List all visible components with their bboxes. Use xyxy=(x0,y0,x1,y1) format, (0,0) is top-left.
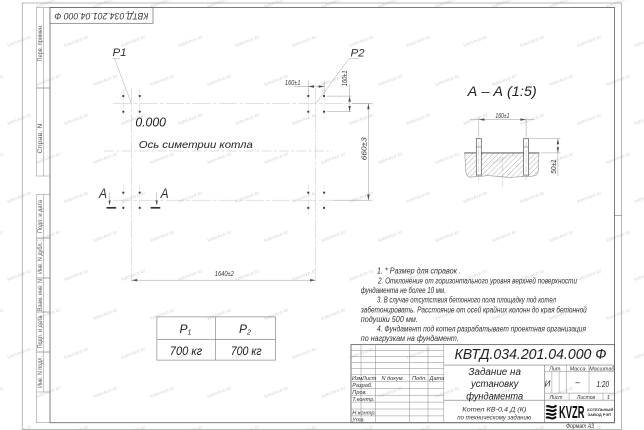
svg-text:kotel-kvzr.kz: kotel-kvzr.kz xyxy=(606,307,632,321)
svg-text:подушки 500 мм.: подушки 500 мм. xyxy=(361,315,418,324)
svg-text:kotel-kvzr.kz: kotel-kvzr.kz xyxy=(406,112,432,126)
svg-text:kotel-kvzr.kz: kotel-kvzr.kz xyxy=(406,424,432,430)
svg-text:kotel-kvzr.kz: kotel-kvzr.kz xyxy=(235,34,261,48)
svg-text:kotel-kvzr.kz: kotel-kvzr.kz xyxy=(0,229,5,243)
svg-text:kotel-kvzr.kz: kotel-kvzr.kz xyxy=(207,73,233,87)
svg-text:kotel-kvzr.kz: kotel-kvzr.kz xyxy=(349,190,375,204)
svg-text:Разраб.: Разраб. xyxy=(352,383,372,389)
svg-text:kotel-kvzr.kz: kotel-kvzr.kz xyxy=(264,229,290,243)
svg-text:kotel-kvzr.kz: kotel-kvzr.kz xyxy=(292,190,318,204)
svg-text:Подп. и дата: Подп. и дата xyxy=(38,315,44,349)
svg-text:kotel-kvzr.kz: kotel-kvzr.kz xyxy=(463,190,489,204)
svg-text:КВТД.034.201.04.000 Ф: КВТД.034.201.04.000 Ф xyxy=(55,11,149,21)
svg-text:kotel-kvzr.kz: kotel-kvzr.kz xyxy=(64,268,90,282)
svg-text:kotel-kvzr.kz: kotel-kvzr.kz xyxy=(292,424,318,430)
svg-text:kotel-kvzr.kz: kotel-kvzr.kz xyxy=(150,385,176,399)
svg-text:–: – xyxy=(574,378,580,387)
svg-text:kotel-kvzr.kz: kotel-kvzr.kz xyxy=(150,229,176,243)
svg-text:P2: P2 xyxy=(351,47,365,59)
svg-text:Лист: Лист xyxy=(361,376,377,382)
svg-text:660±3: 660±3 xyxy=(360,136,369,160)
svg-text:kotel-kvzr.kz: kotel-kvzr.kz xyxy=(378,73,404,87)
svg-text:kotel-kvzr.kz: kotel-kvzr.kz xyxy=(121,424,147,430)
svg-text:kotel-kvzr.kz: kotel-kvzr.kz xyxy=(7,424,33,430)
svg-text:1640±2: 1640±2 xyxy=(215,271,234,278)
svg-text:kotel-kvzr.kz: kotel-kvzr.kz xyxy=(150,73,176,87)
svg-text:kotel-kvzr.kz: kotel-kvzr.kz xyxy=(7,34,33,48)
svg-text:Задание на: Задание на xyxy=(468,367,521,378)
svg-text:kotel-kvzr.kz: kotel-kvzr.kz xyxy=(207,229,233,243)
svg-text:Масштаб: Масштаб xyxy=(589,367,615,373)
svg-text:Ось симетрии котла: Ось симетрии котла xyxy=(139,139,253,151)
svg-text:kotel-kvzr.kz: kotel-kvzr.kz xyxy=(150,151,176,165)
svg-text:kotel-kvzr.kz: kotel-kvzr.kz xyxy=(577,34,603,48)
svg-text:kotel-kvzr.kz: kotel-kvzr.kz xyxy=(349,268,375,282)
svg-text:kotel-kvzr.kz: kotel-kvzr.kz xyxy=(406,190,432,204)
svg-text:kotel-kvzr.kz: kotel-kvzr.kz xyxy=(520,190,546,204)
svg-text:kotel-kvzr.kz: kotel-kvzr.kz xyxy=(292,34,318,48)
svg-text:ЗАВОД РЭП: ЗАВОД РЭП xyxy=(588,412,612,417)
svg-text:1: 1 xyxy=(607,395,610,401)
svg-text:Инв. N подл.: Инв. N подл. xyxy=(38,356,44,388)
svg-text:kotel-kvzr.kz: kotel-kvzr.kz xyxy=(264,385,290,399)
svg-text:kotel-kvzr.kz: kotel-kvzr.kz xyxy=(93,73,119,87)
svg-text:3. В случае отсутствия бетонно: 3. В случае отсутствия бетонного пола пл… xyxy=(377,296,556,305)
svg-text:kotel-kvzr.kz: kotel-kvzr.kz xyxy=(178,190,204,204)
svg-text:kotel-kvzr.kz: kotel-kvzr.kz xyxy=(0,0,5,9)
svg-text:И: И xyxy=(545,379,551,388)
svg-text:kotel-kvzr.kz: kotel-kvzr.kz xyxy=(634,268,644,282)
svg-text:kotel-kvzr.kz: kotel-kvzr.kz xyxy=(463,112,489,126)
svg-text:kotel-kvzr.kz: kotel-kvzr.kz xyxy=(121,190,147,204)
svg-text:kotel-kvzr.kz: kotel-kvzr.kz xyxy=(606,151,632,165)
svg-text:kotel-kvzr.kz: kotel-kvzr.kz xyxy=(435,73,461,87)
svg-text:kotel-kvzr.kz: kotel-kvzr.kz xyxy=(7,268,33,282)
svg-text:kotel-kvzr.kz: kotel-kvzr.kz xyxy=(64,424,90,430)
svg-text:установку: установку xyxy=(470,379,520,390)
svg-text:kotel-kvzr.kz: kotel-kvzr.kz xyxy=(235,190,261,204)
svg-text:kotel-kvzr.kz: kotel-kvzr.kz xyxy=(520,112,546,126)
svg-text:kotel-kvzr.kz: kotel-kvzr.kz xyxy=(93,307,119,321)
svg-text:1. * Размер для справок .: 1. * Размер для справок . xyxy=(377,267,461,276)
svg-text:kotel-kvzr.kz: kotel-kvzr.kz xyxy=(634,424,644,430)
svg-text:kotel-kvzr.kz: kotel-kvzr.kz xyxy=(520,34,546,48)
svg-text:kotel-kvzr.kz: kotel-kvzr.kz xyxy=(634,34,644,48)
svg-text:kotel-kvzr.kz: kotel-kvzr.kz xyxy=(292,112,318,126)
svg-text:N докум.: N докум. xyxy=(382,376,405,382)
svg-text:KVZR: KVZR xyxy=(559,402,585,422)
svg-text:kotel-kvzr.kz: kotel-kvzr.kz xyxy=(634,190,644,204)
svg-text:kotel-kvzr.kz: kotel-kvzr.kz xyxy=(492,229,518,243)
svg-text:kotel-kvzr.kz: kotel-kvzr.kz xyxy=(0,307,5,321)
svg-text:kotel-kvzr.kz: kotel-kvzr.kz xyxy=(178,34,204,48)
svg-text:kotel-kvzr.kz: kotel-kvzr.kz xyxy=(463,424,489,430)
svg-text:P2: P2 xyxy=(239,322,251,337)
svg-text:kotel-kvzr.kz: kotel-kvzr.kz xyxy=(435,151,461,165)
svg-text:kotel-kvzr.kz: kotel-kvzr.kz xyxy=(235,268,261,282)
svg-text:kotel-kvzr.kz: kotel-kvzr.kz xyxy=(549,73,575,87)
svg-text:kotel-kvzr.kz: kotel-kvzr.kz xyxy=(264,307,290,321)
svg-text:kotel-kvzr.kz: kotel-kvzr.kz xyxy=(64,34,90,48)
svg-text:kotel-kvzr.kz: kotel-kvzr.kz xyxy=(435,229,461,243)
svg-text:kotel-kvzr.kz: kotel-kvzr.kz xyxy=(577,112,603,126)
svg-text:Пров.: Пров. xyxy=(352,390,367,396)
svg-text:Перв. примен.: Перв. примен. xyxy=(38,24,44,61)
svg-text:kotel-kvzr.kz: kotel-kvzr.kz xyxy=(321,151,347,165)
svg-text:Листов: Листов xyxy=(576,395,596,401)
svg-text:А: А xyxy=(160,185,169,201)
svg-text:kotel-kvzr.kz: kotel-kvzr.kz xyxy=(0,385,5,399)
svg-text:Справ. N: Справ. N xyxy=(38,124,44,154)
svg-text:kotel-kvzr.kz: kotel-kvzr.kz xyxy=(64,346,90,360)
svg-text:kotel-kvzr.kz: kotel-kvzr.kz xyxy=(349,112,375,126)
svg-text:kotel-kvzr.kz: kotel-kvzr.kz xyxy=(36,73,62,87)
svg-text:kotel-kvzr.kz: kotel-kvzr.kz xyxy=(435,385,461,399)
svg-text:Котел КВ-0,4 Д (К): Котел КВ-0,4 Д (К) xyxy=(462,406,526,413)
svg-text:kotel-kvzr.kz: kotel-kvzr.kz xyxy=(264,151,290,165)
svg-text:kotel-kvzr.kz: kotel-kvzr.kz xyxy=(0,73,5,87)
svg-text:kotel-kvzr.kz: kotel-kvzr.kz xyxy=(121,346,147,360)
svg-text:700 кг: 700 кг xyxy=(170,346,203,358)
svg-text:160±1: 160±1 xyxy=(342,70,349,86)
svg-text:Т.контр.: Т.контр. xyxy=(352,397,375,403)
svg-text:Утв.: Утв. xyxy=(351,418,365,424)
svg-text:P1: P1 xyxy=(113,47,127,59)
svg-text:kotel-kvzr.kz: kotel-kvzr.kz xyxy=(520,424,546,430)
svg-text:kotel-kvzr.kz: kotel-kvzr.kz xyxy=(150,307,176,321)
svg-text:kotel-kvzr.kz: kotel-kvzr.kz xyxy=(235,424,261,430)
svg-text:kotel-kvzr.kz: kotel-kvzr.kz xyxy=(349,346,375,360)
svg-text:P1: P1 xyxy=(180,322,192,337)
svg-text:700 кг: 700 кг xyxy=(231,346,262,358)
svg-text:Дата: Дата xyxy=(429,376,445,382)
svg-text:Лит.: Лит. xyxy=(548,367,562,373)
svg-text:kotel-kvzr.kz: kotel-kvzr.kz xyxy=(349,34,375,48)
svg-text:0.000: 0.000 xyxy=(135,115,166,129)
svg-text:kotel-kvzr.kz: kotel-kvzr.kz xyxy=(0,151,5,165)
svg-text:А: А xyxy=(98,185,107,201)
svg-text:по нагрузкам на фундамент.: по нагрузкам на фундамент. xyxy=(361,334,459,343)
svg-text:kotel-kvzr.kz: kotel-kvzr.kz xyxy=(64,112,90,126)
svg-text:kotel-kvzr.kz: kotel-kvzr.kz xyxy=(178,424,204,430)
svg-text:kotel-kvzr.kz: kotel-kvzr.kz xyxy=(7,190,33,204)
svg-text:kotel-kvzr.kz: kotel-kvzr.kz xyxy=(378,151,404,165)
svg-text:kotel-kvzr.kz: kotel-kvzr.kz xyxy=(321,229,347,243)
svg-text:по техническому заданию: по техническому заданию xyxy=(457,413,531,421)
svg-text:kotel-kvzr.kz: kotel-kvzr.kz xyxy=(321,385,347,399)
svg-text:kotel-kvzr.kz: kotel-kvzr.kz xyxy=(64,190,90,204)
svg-text:Н.контр.: Н.контр. xyxy=(352,411,376,417)
svg-text:kotel-kvzr.kz: kotel-kvzr.kz xyxy=(321,307,347,321)
svg-text:КВТД.034.201.04.000 Ф: КВТД.034.201.04.000 Ф xyxy=(455,346,607,363)
svg-text:Инв. N дубл.: Инв. N дубл. xyxy=(38,242,44,274)
svg-text:1:20: 1:20 xyxy=(597,380,610,389)
svg-text:kotel-kvzr.kz: kotel-kvzr.kz xyxy=(378,385,404,399)
svg-text:Взам. инв. N: Взам. инв. N xyxy=(38,279,44,311)
svg-text:kotel-kvzr.kz: kotel-kvzr.kz xyxy=(577,268,603,282)
svg-text:kotel-kvzr.kz: kotel-kvzr.kz xyxy=(7,112,33,126)
svg-text:2. Отклонение от горизонтально: 2. Отклонение от горизонтального уровня … xyxy=(377,276,577,285)
svg-text:Масса: Масса xyxy=(570,367,586,373)
svg-text:kotel-kvzr.kz: kotel-kvzr.kz xyxy=(634,346,644,360)
svg-text:фундамента: фундамента xyxy=(466,391,524,402)
svg-text:kotel-kvzr.kz: kotel-kvzr.kz xyxy=(178,268,204,282)
svg-text:50±1: 50±1 xyxy=(551,159,558,174)
svg-text:160±1: 160±1 xyxy=(285,80,301,87)
svg-text:kotel-kvzr.kz: kotel-kvzr.kz xyxy=(121,34,147,48)
svg-text:Подп. и дата: Подп. и дата xyxy=(38,199,44,233)
svg-text:kotel-kvzr.kz: kotel-kvzr.kz xyxy=(577,190,603,204)
svg-text:kotel-kvzr.kz: kotel-kvzr.kz xyxy=(93,151,119,165)
svg-text:4. Фундамент под котел разраба: 4. Фундамент под котел разрабатывает про… xyxy=(377,325,587,334)
svg-text:kotel-kvzr.kz: kotel-kvzr.kz xyxy=(549,229,575,243)
svg-text:kotel-kvzr.kz: kotel-kvzr.kz xyxy=(207,385,233,399)
svg-text:kotel-kvzr.kz: kotel-kvzr.kz xyxy=(292,346,318,360)
svg-text:kotel-kvzr.kz: kotel-kvzr.kz xyxy=(235,112,261,126)
svg-text:kotel-kvzr.kz: kotel-kvzr.kz xyxy=(634,112,644,126)
svg-text:kotel-kvzr.kz: kotel-kvzr.kz xyxy=(463,34,489,48)
svg-text:kotel-kvzr.kz: kotel-kvzr.kz xyxy=(349,424,375,430)
svg-text:Формат А3: Формат А3 xyxy=(566,423,594,430)
svg-text:забетонировать. Расстояние от: забетонировать. Расстояние от осей крайн… xyxy=(360,305,587,314)
svg-text:фундамента не более 10 мм.: фундамента не более 10 мм. xyxy=(361,286,446,295)
svg-text:kotel-kvzr.kz: kotel-kvzr.kz xyxy=(93,229,119,243)
svg-text:kotel-kvzr.kz: kotel-kvzr.kz xyxy=(207,151,233,165)
svg-text:kotel-kvzr.kz: kotel-kvzr.kz xyxy=(378,229,404,243)
svg-text:Лист: Лист xyxy=(549,395,563,401)
svg-text:kotel-kvzr.kz: kotel-kvzr.kz xyxy=(406,34,432,48)
svg-text:kotel-kvzr.kz: kotel-kvzr.kz xyxy=(207,307,233,321)
svg-text:kotel-kvzr.kz: kotel-kvzr.kz xyxy=(7,346,33,360)
svg-text:160±1: 160±1 xyxy=(495,113,509,120)
svg-text:kotel-kvzr.kz: kotel-kvzr.kz xyxy=(606,73,632,87)
svg-text:kotel-kvzr.kz: kotel-kvzr.kz xyxy=(606,229,632,243)
svg-text:Подп.: Подп. xyxy=(412,376,427,382)
svg-text:А – А (1:5): А – А (1:5) xyxy=(467,83,537,99)
svg-text:kotel-kvzr.kz: kotel-kvzr.kz xyxy=(178,112,204,126)
svg-text:kotel-kvzr.kz: kotel-kvzr.kz xyxy=(93,385,119,399)
